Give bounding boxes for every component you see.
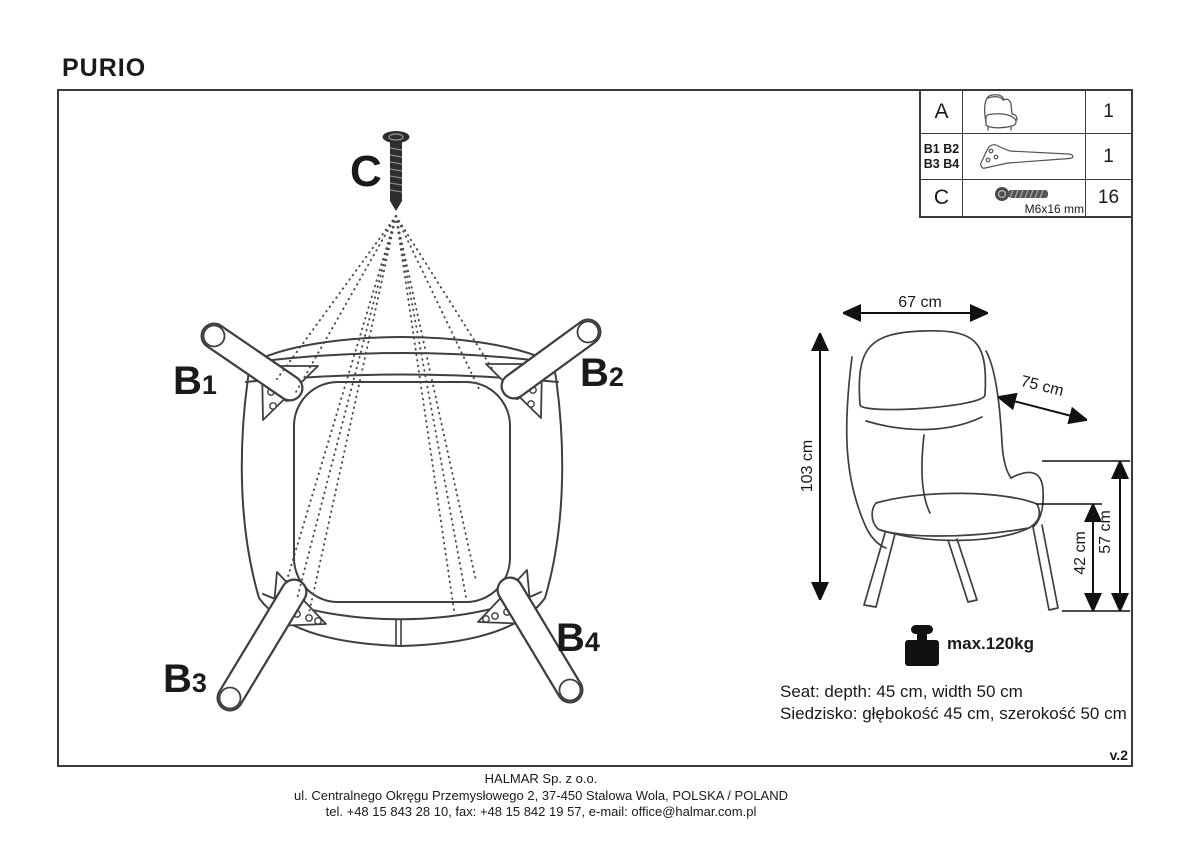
part-a-id: A: [921, 91, 963, 134]
label-leg-b3: B3: [163, 659, 207, 699]
part-a-qty: 1: [1086, 91, 1131, 134]
footer-contact: tel. +48 15 843 28 10, fax: +48 15 842 1…: [0, 804, 1082, 821]
weight-icon: [903, 624, 943, 668]
part-b-image: [963, 134, 1086, 180]
footer: HALMAR Sp. z o.o. ul. Centralnego Okręgu…: [0, 771, 1082, 821]
screw-spec: M6x16 mm: [1025, 202, 1084, 216]
footer-address: ul. Centralnego Okręgu Przemysłowego 2, …: [0, 788, 1082, 805]
seat-spec-pl: Siedzisko: głębokość 45 cm, szerokość 50…: [780, 703, 1127, 725]
footer-company: HALMAR Sp. z o.o.: [0, 771, 1082, 788]
dim-height-label: 103 cm: [799, 434, 817, 498]
dim-seat-height-label: 42 cm: [1072, 521, 1090, 585]
screw-c-drawing: [383, 131, 410, 211]
part-b-id: B1 B2 B3 B4: [921, 134, 963, 180]
label-screw-c: C: [350, 150, 382, 194]
armchair-icon: [978, 92, 1024, 132]
version-label: v.2: [1060, 747, 1128, 763]
instruction-sheet: PURIO: [0, 0, 1200, 848]
part-a-image: [963, 91, 1086, 134]
legs: [204, 322, 599, 709]
dim-total-seat-height-label: 57 cm: [1097, 500, 1115, 564]
label-leg-b1: B1: [173, 361, 217, 401]
part-b-qty: 1: [1086, 134, 1131, 180]
seat-spec-en: Seat: depth: 45 cm, width 50 cm: [780, 681, 1127, 703]
part-c-image: M6x16 mm: [963, 180, 1086, 216]
screw-icon: [993, 185, 1055, 203]
label-leg-b4: B4: [556, 618, 600, 658]
page-title: PURIO: [62, 54, 146, 83]
max-load-label: max.120kg: [947, 634, 1034, 654]
part-c-qty: 16: [1086, 180, 1131, 216]
part-c-id: C: [921, 180, 963, 216]
dimension-drawing: [790, 285, 1140, 675]
dim-width-label: 67 cm: [888, 294, 952, 312]
seat-spec: Seat: depth: 45 cm, width 50 cm Siedzisk…: [780, 681, 1127, 725]
parts-table: A 1 B1 B2 B3 B4: [919, 89, 1133, 218]
screw-guide-lines: [277, 216, 498, 613]
label-leg-b2: B2: [580, 353, 624, 393]
leg-bracket-icon: [972, 139, 1076, 175]
